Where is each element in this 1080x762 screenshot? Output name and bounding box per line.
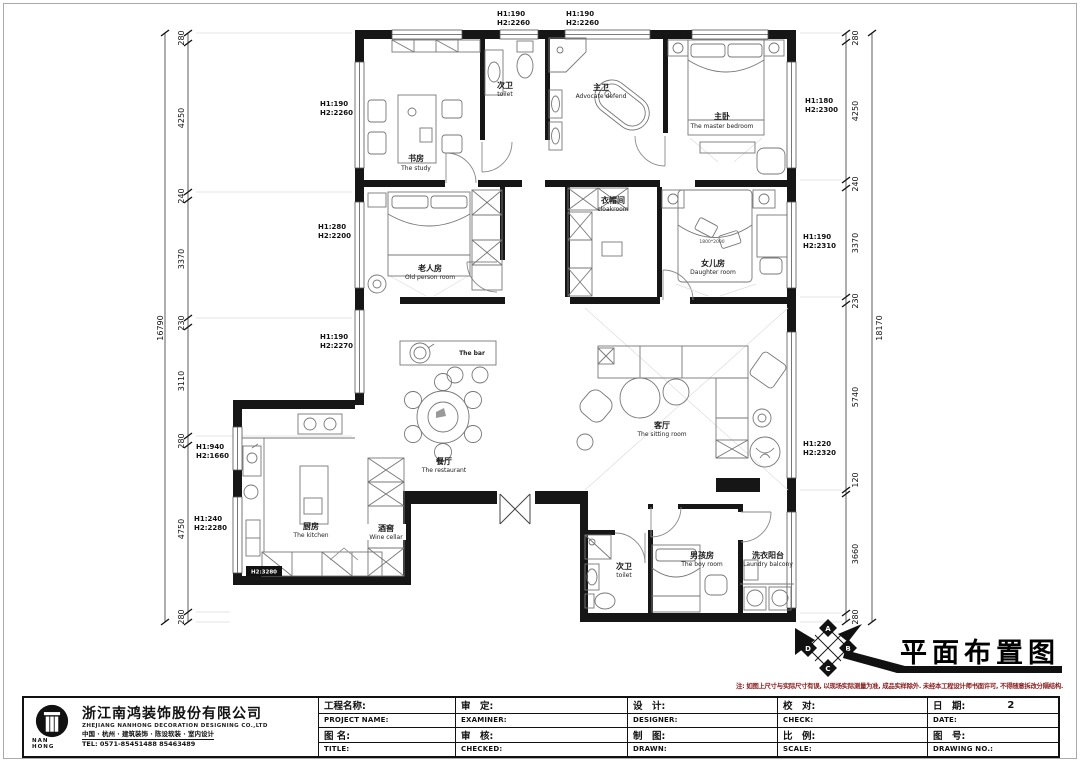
svg-text:H2:2260: H2:2260	[566, 19, 599, 27]
field-number-en: DRAWING NO.:	[927, 742, 1058, 757]
floor-plan-sheet: 16790 280 4250 240 3370 230 3110 280 475…	[0, 0, 1080, 762]
dim-left-total: 16790	[156, 315, 165, 340]
svg-text:H2:2300: H2:2300	[805, 106, 838, 114]
svg-text:H2:2260: H2:2260	[320, 109, 353, 117]
field-project-en: PROJECT NAME:	[318, 713, 455, 728]
svg-text:3110: 3110	[177, 371, 186, 391]
label-restaurant-en: The restaurant	[421, 467, 467, 474]
room-daughter: 1800*2000 女儿房 Daughter room	[662, 190, 787, 282]
compass-letter-c: C	[825, 665, 830, 673]
drawing-note: 注: 如图上尺寸与实际尺寸有误, 以现场实际测量为准, 成品实样除外. 未经本工…	[736, 681, 1080, 690]
svg-text:3370: 3370	[851, 233, 860, 253]
room-toilet-bottom: 次卫 toilet	[585, 535, 632, 609]
room-old-person: 老人房 Old person room	[368, 190, 502, 293]
svg-text:4250: 4250	[177, 108, 186, 128]
window-height-labels: H1:190 H2:2260 H1:190 H2:2260 H1:190 H2:…	[194, 10, 838, 532]
room-master-bath: 主卫 Advocate defend	[549, 38, 656, 150]
svg-text:280: 280	[177, 30, 186, 45]
field-drawn-en: DRAWN:	[627, 742, 777, 757]
label-toilet-top-zh: 次卫	[497, 80, 513, 90]
svg-text:230: 230	[851, 293, 860, 308]
field-drawn-zh: 制 图:	[627, 727, 777, 742]
svg-text:H2:3280: H2:3280	[251, 570, 277, 576]
field-number-zh: 图 号:	[927, 727, 1058, 742]
dimension-labels-left: 16790 280 4250 240 3370 230 3110 280 475…	[156, 30, 186, 624]
field-checked-en: CHECKED:	[455, 742, 627, 757]
field-date-en: DATE:	[927, 713, 1058, 728]
field-designer-en: DESIGNER:	[627, 713, 777, 728]
room-sitting: 客厅 The sitting room	[576, 346, 787, 467]
bar-area: The bar	[400, 341, 496, 383]
wine-cellar: 酒窖 Wine cellar	[366, 458, 406, 576]
svg-text:H2:2310: H2:2310	[803, 242, 836, 250]
svg-text:H2:2280: H2:2280	[194, 524, 227, 532]
label-wine-en: Wine cellar	[369, 534, 403, 541]
dim-right-total: 18170	[875, 315, 884, 340]
field-title-en: TITLE:	[318, 742, 455, 757]
svg-text:280: 280	[851, 609, 860, 624]
room-laundry: 洗衣阳台 Laundry balcony	[740, 550, 794, 610]
svg-text:4750: 4750	[177, 519, 186, 539]
field-scale-en: SCALE:	[777, 742, 927, 757]
svg-text:H1:220: H1:220	[803, 440, 831, 448]
label-daughter-zh: 女儿房	[701, 258, 725, 268]
svg-text:230: 230	[177, 315, 186, 330]
logo-subtext: NAN HONG	[32, 738, 72, 750]
company-block: NAN HONG 浙江南鸿装饰股份有限公司 ZHEJIANG NANHONG D…	[24, 698, 318, 756]
label-bed-size: 1800*2000	[699, 239, 724, 245]
dimension-chain-right	[800, 30, 876, 625]
field-examiner-en: EXAMINER:	[455, 713, 627, 728]
svg-text:H1:190: H1:190	[320, 333, 348, 341]
label-daughter-en: Daughter room	[690, 269, 736, 276]
label-laundry-zh: 洗衣阳台	[752, 550, 784, 560]
label-restaurant-zh: 餐厅	[435, 456, 452, 466]
svg-text:H2:2260: H2:2260	[497, 19, 530, 27]
date-value: 2	[1007, 700, 1014, 711]
label-boy-zh: 男孩房	[690, 550, 714, 560]
nanhong-logo-icon	[33, 704, 71, 738]
svg-text:240: 240	[177, 188, 186, 203]
label-toilet-top-en: toilet	[497, 91, 513, 98]
label-toilet-bottom-en: toilet	[616, 572, 632, 579]
field-checked-zh: 审 核:	[455, 727, 627, 742]
svg-text:H2:2200: H2:2200	[318, 232, 351, 240]
svg-text:280: 280	[851, 30, 860, 45]
company-logo: NAN HONG	[32, 704, 72, 750]
company-name-zh: 浙江南鸿装饰股份有限公司	[82, 706, 268, 724]
label-wine-zh: 酒窖	[378, 523, 394, 533]
room-restaurant: 餐厅 The restaurant	[405, 374, 482, 475]
company-tel: TEL: 0571-85451488 85463489	[82, 740, 268, 748]
svg-text:3370: 3370	[177, 249, 186, 269]
field-designer-zh: 设 计:	[627, 698, 777, 713]
entry-door-symbol	[500, 494, 530, 524]
field-project-zh: 工程名称:	[318, 698, 455, 713]
svg-text:H2:2320: H2:2320	[803, 449, 836, 457]
room-master-bedroom: 主卧 The master bedroom	[668, 40, 785, 174]
compass-letter-a: A	[825, 625, 831, 633]
dimension-labels-right: 18170 280 4250 240 3370 230 5740 120 366…	[851, 30, 884, 624]
label-study-en: The study	[400, 165, 431, 172]
label-old-person-zh: 老人房	[417, 263, 442, 273]
svg-text:280: 280	[177, 433, 186, 448]
field-check-en: CHECK:	[777, 713, 927, 728]
company-services: 中国 · 杭州 · 建筑装饰 · 陈设软装 · 室内设计	[82, 730, 214, 740]
svg-text:240: 240	[851, 176, 860, 191]
room-boy: 男孩房 The boy room	[652, 545, 727, 612]
svg-text:H1:190: H1:190	[497, 10, 525, 18]
label-old-person-en: Old person room	[405, 274, 455, 281]
svg-text:H2:1660: H2:1660	[196, 452, 229, 460]
room-toilet-top: 次卫 toilet	[485, 41, 533, 98]
svg-text:5740: 5740	[851, 387, 860, 407]
drawing-title: 平面布置图	[900, 638, 1060, 669]
field-scale-zh: 比 例:	[777, 727, 927, 742]
room-kitchen: 厨房 The kitchen	[242, 414, 382, 576]
label-cloakroom-en: cloakroom	[597, 206, 628, 213]
label-sitting-zh: 客厅	[653, 420, 670, 430]
svg-text:H1:190: H1:190	[320, 100, 348, 108]
svg-text:120: 120	[851, 472, 860, 487]
label-kitchen-en: The kitchen	[292, 532, 328, 539]
label-toilet-bottom-zh: 次卫	[616, 561, 632, 571]
svg-text:H1:240: H1:240	[194, 515, 222, 523]
label-bar-en: The bar	[459, 350, 485, 357]
svg-text:H1:190: H1:190	[803, 233, 831, 241]
room-cloakroom: 衣帽间 cloakroom	[568, 188, 629, 296]
label-laundry-en: Laundry balcony	[743, 561, 793, 568]
label-master-bath-en: Advocate defend	[576, 93, 627, 100]
label-boy-en: The boy room	[680, 561, 723, 568]
floor-plan-drawing: 16790 280 4250 240 3370 230 3110 280 475…	[0, 0, 1080, 762]
title-block: NAN HONG 浙江南鸿装饰股份有限公司 ZHEJIANG NANHONG D…	[22, 696, 1060, 758]
field-check-zh: 校 对:	[777, 698, 927, 713]
svg-text:280: 280	[177, 609, 186, 624]
field-examiner-zh: 审 定:	[455, 698, 627, 713]
room-study: 书房 The study	[368, 40, 480, 172]
floor-pattern-lines	[390, 138, 788, 490]
svg-text:3660: 3660	[851, 544, 860, 564]
svg-text:4250: 4250	[851, 101, 860, 121]
label-sitting-en: The sitting room	[636, 431, 686, 438]
compass-letter-d: D	[805, 645, 811, 653]
field-title-zh: 图 名:	[318, 727, 455, 742]
wine-cellar-label: 酒窖 Wine cellar	[366, 523, 406, 541]
label-cloakroom-zh: 衣帽间	[601, 195, 625, 205]
label-master-bedroom-zh: 主卧	[714, 111, 730, 121]
field-date-zh: 日 期: 2	[927, 698, 1058, 713]
svg-text:H1:190: H1:190	[566, 10, 594, 18]
beam-height-tag: H2:3280	[246, 566, 282, 576]
svg-text:H1:180: H1:180	[805, 97, 833, 105]
label-study-zh: 书房	[408, 153, 424, 163]
label-kitchen-zh: 厨房	[303, 521, 319, 531]
label-master-bedroom-en: The master bedroom	[690, 123, 754, 130]
svg-text:H2:2270: H2:2270	[320, 342, 353, 350]
svg-text:H1:280: H1:280	[318, 223, 346, 231]
svg-text:H1:940: H1:940	[196, 443, 224, 451]
label-master-bath-zh: 主卫	[593, 82, 609, 92]
